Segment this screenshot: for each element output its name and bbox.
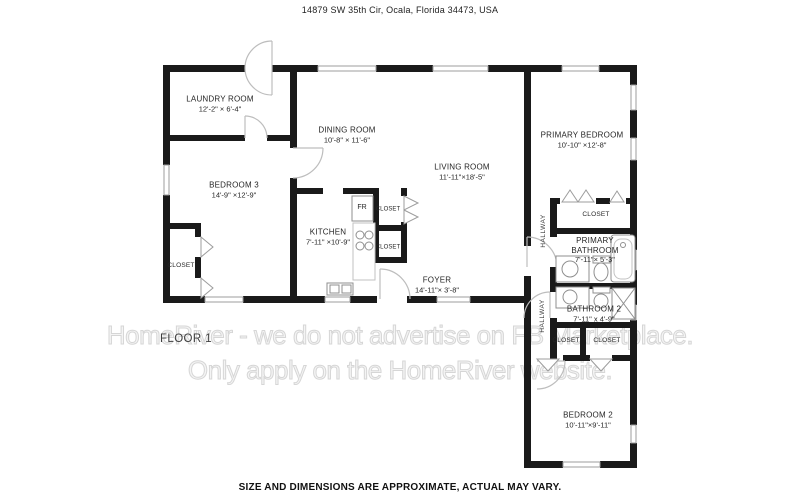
- bedroom3-label: BEDROOM 3 14'-9" ×12'-9": [209, 181, 259, 200]
- primary-bathroom-label: PRIMARY BATHROOM 7'-11"× 5'-3": [564, 236, 626, 264]
- primary-bedroom-label: PRIMARY BEDROOM 10'-10" ×12'-8": [541, 131, 624, 150]
- hall-closet2-label: CLOSET: [593, 337, 620, 345]
- living-room-label: LIVING ROOM 11'-11"×18'-5": [434, 163, 490, 182]
- hallway2-label: HALLWAY: [539, 299, 547, 332]
- kitchen-closet2-label: CLOSET: [376, 244, 401, 251]
- floor-label: FLOOR 1: [160, 333, 212, 347]
- address-title: 14879 SW 35th Cir, Ocala, Florida 34473,…: [0, 5, 800, 15]
- hall-closet1-label: CLOSET: [552, 337, 579, 345]
- room-labels-layer: LAUNDRY ROOM 12'-2" × 6'-4" DINING ROOM …: [0, 0, 800, 499]
- floor-plan-page: 14879 SW 35th Cir, Ocala, Florida 34473,…: [0, 0, 800, 499]
- disclaimer-text: SIZE AND DIMENSIONS ARE APPROXIMATE, ACT…: [0, 482, 800, 493]
- primary-closet-label: CLOSET: [582, 211, 609, 219]
- fridge-label: FR: [357, 204, 366, 212]
- kitchen-label: KITCHEN 7'-11" ×10'-9": [306, 228, 350, 247]
- bedroom2-label: BEDROOM 2 10'-11"×9'-11": [563, 411, 613, 430]
- kitchen-closet1-label: CLOSET: [376, 206, 401, 213]
- dining-room-label: DINING ROOM 10'-8" × 11'-6": [318, 126, 375, 145]
- bedroom3-closet-label: CLOSET: [167, 262, 194, 270]
- bathroom2-label: BATHROOM 2 7'-11" x 4'-9": [567, 305, 621, 324]
- hallway1-label: HALLWAY: [540, 214, 548, 247]
- laundry-room-label: LAUNDRY ROOM 12'-2" × 6'-4": [186, 95, 253, 114]
- foyer-label: FOYER 14'-11"× 3'-8": [415, 276, 459, 295]
